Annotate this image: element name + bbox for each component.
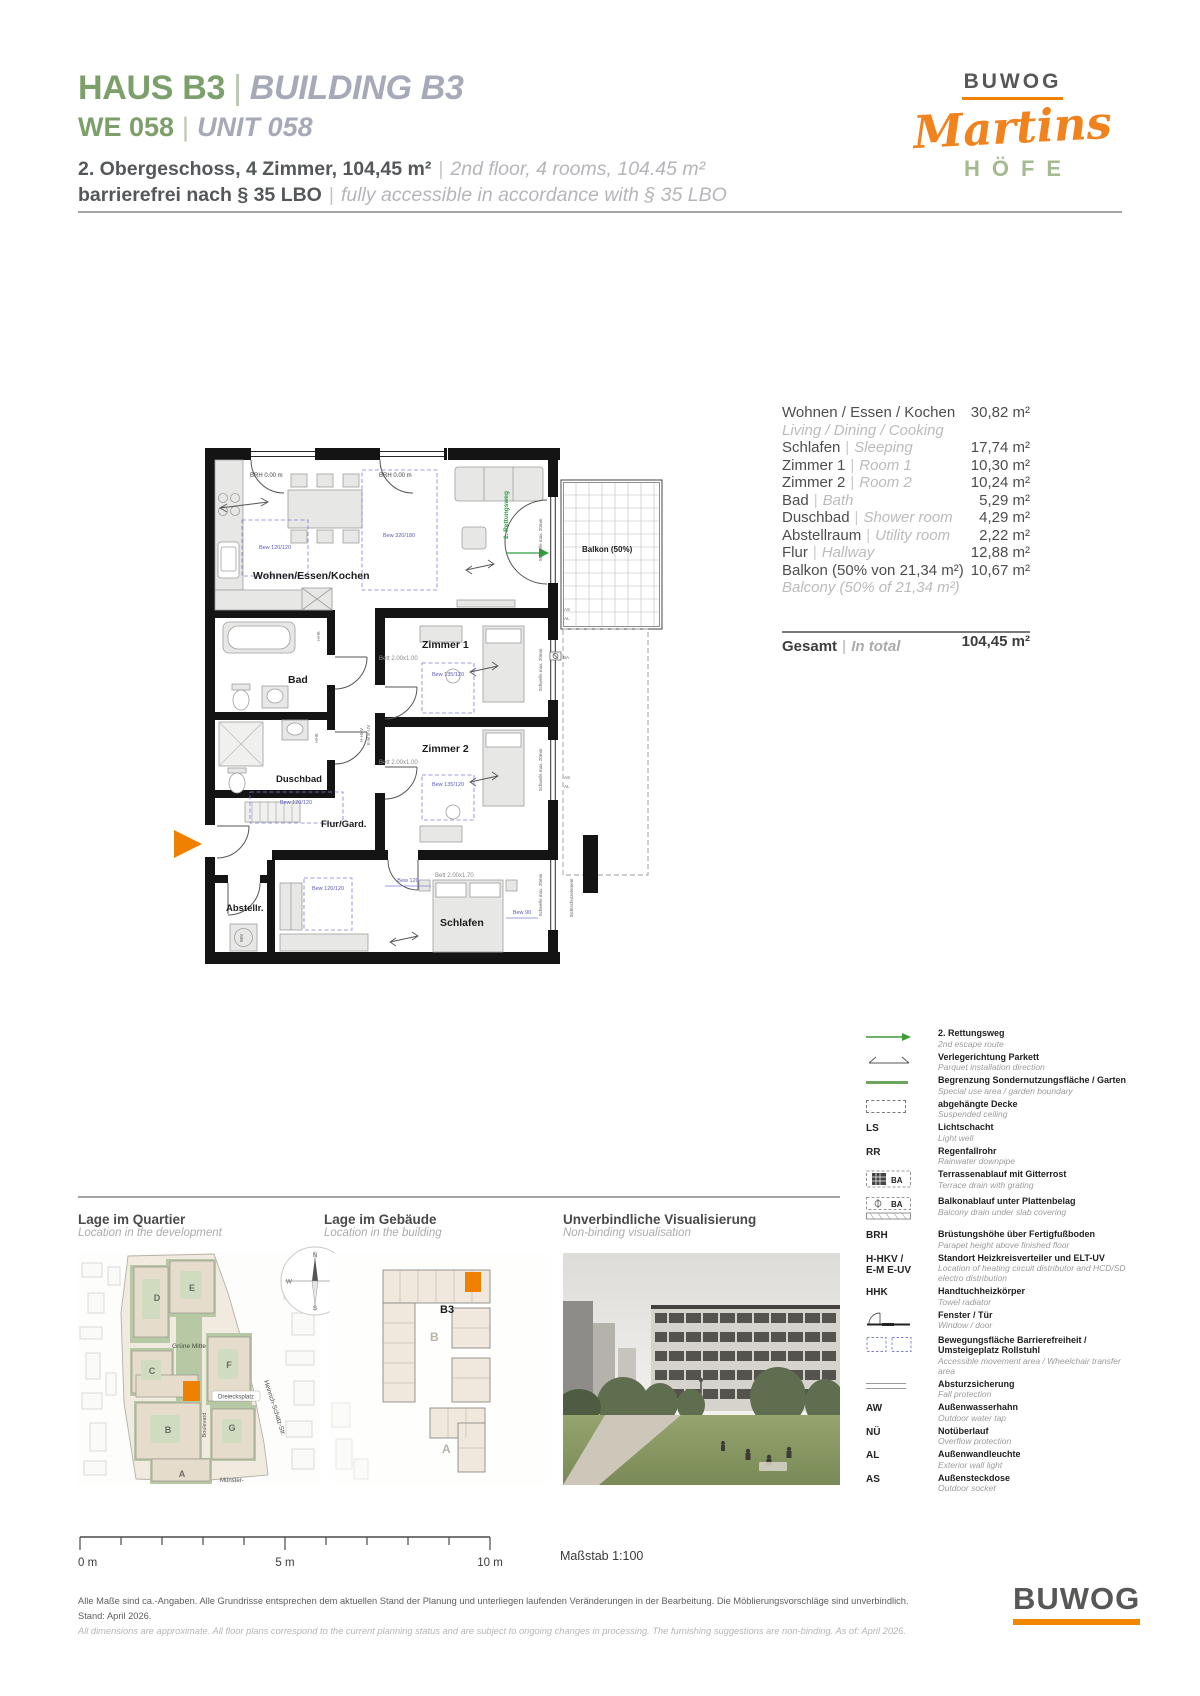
accessible-area-icon bbox=[866, 1336, 916, 1354]
legend-item-overflow: NÜ NotüberlaufOverflow protection bbox=[866, 1426, 1128, 1447]
svg-text:BA: BA bbox=[891, 1200, 903, 1209]
bed-size-sleeping: Bett 2.00x1.70 bbox=[435, 873, 474, 879]
svg-text:C: C bbox=[149, 1366, 156, 1376]
dashed-ceiling-icon bbox=[866, 1100, 906, 1113]
room-label-sleeping: Schlafen bbox=[440, 917, 484, 929]
area-row-living: Wohnen / Essen / Kochen30,82 m² Living /… bbox=[782, 404, 1030, 439]
legend-item-parapet-height: BRH Brüstungshöhe über FertigfußbodenPar… bbox=[866, 1229, 1128, 1250]
svg-text:Bew 320/180: Bew 320/180 bbox=[383, 533, 415, 539]
window-door-icon bbox=[866, 1311, 912, 1327]
bed-size-room2: Bett 2.00x1.00 bbox=[379, 760, 418, 766]
area-row-shower: Duschbad|Shower room4,29 m² bbox=[782, 509, 1030, 527]
room-label-room1: Zimmer 1 bbox=[422, 639, 469, 651]
svg-text:E-M E-UV: E-M E-UV bbox=[366, 725, 371, 745]
svg-text:Bew 120/120: Bew 120/120 bbox=[280, 800, 312, 806]
svg-text:Bew 120: Bew 120 bbox=[397, 878, 418, 884]
entrance-arrow-icon bbox=[174, 830, 202, 858]
maps-divider bbox=[78, 1196, 840, 1198]
boulevard-label: Boulevard bbox=[202, 1413, 208, 1438]
buwog-wordmark: BUWOG bbox=[962, 70, 1064, 100]
svg-text:D: D bbox=[154, 1293, 161, 1303]
area-row-balcony: Balkon (50% von 21,34 m²)10,67 m² Balcon… bbox=[782, 562, 1030, 597]
accessibility-info: barrierefrei nach § 35 LBO|fully accessi… bbox=[78, 182, 778, 208]
floor-plan-drawing: Bew 120/120 Bew 320/180 Bew 135/120 Bew … bbox=[170, 430, 670, 975]
quartier-highlight-unit bbox=[183, 1381, 200, 1401]
floor-plan: Bew 120/120 Bew 320/180 Bew 135/120 Bew … bbox=[170, 430, 670, 975]
legend: 2. Rettungsweg2nd escape route Verlegeri… bbox=[866, 1028, 1128, 1496]
svg-text:AS: AS bbox=[564, 775, 570, 780]
legend-item-escape-route: 2. Rettungsweg2nd escape route bbox=[866, 1028, 1128, 1049]
svg-text:Bew 120/120: Bew 120/120 bbox=[312, 886, 344, 892]
legend-item-terrace-drain: BA Terrassenablauf mit GitterrostTerrace… bbox=[866, 1169, 1128, 1193]
svg-text:Schwelle max. 20mm: Schwelle max. 20mm bbox=[538, 873, 543, 916]
fall-protection-icon bbox=[866, 1383, 906, 1389]
svg-text:AL: AL bbox=[564, 616, 570, 621]
legend-item-light-well: LS LichtschachtLight well bbox=[866, 1122, 1128, 1143]
quartier-map-title: Lage im Quartier Location in the develop… bbox=[78, 1212, 222, 1239]
building-map: B3 B A bbox=[330, 1253, 550, 1490]
parquet-arrow-icon bbox=[866, 1054, 912, 1066]
green-center-label: Grüne Mitte bbox=[172, 1343, 206, 1350]
svg-text:S: S bbox=[313, 1305, 318, 1312]
legend-item-exterior-light: AL AußenwandleuchteExterior wall light bbox=[866, 1449, 1128, 1470]
title-en: BUILDING B3 bbox=[250, 69, 464, 107]
svg-text:HHK: HHK bbox=[314, 733, 319, 743]
room-label-room2: Zimmer 2 bbox=[422, 743, 469, 755]
svg-text:F: F bbox=[226, 1360, 232, 1370]
balcony-drain-label: BA bbox=[563, 655, 569, 660]
legend-item-outdoor-water-tap: AW AußenwasserhahnOutdoor water tap bbox=[866, 1402, 1128, 1423]
project-name-caps: HÖFE bbox=[905, 156, 1120, 182]
terrace-drain-icon: BA bbox=[866, 1170, 916, 1188]
room-label-shower: Duschbad bbox=[276, 774, 322, 785]
svg-text:2. Rettungsweg: 2. Rettungsweg bbox=[503, 491, 510, 539]
disclaimer: Alle Maße sind ca.-Angaben. Alle Grundri… bbox=[78, 1594, 928, 1639]
svg-text:E: E bbox=[189, 1283, 195, 1293]
room-label-storage: Abstellr. bbox=[226, 903, 264, 914]
svg-text:AS: AS bbox=[564, 607, 570, 612]
svg-text:Schwelle max. 20mm: Schwelle max. 20mm bbox=[538, 648, 543, 691]
building-map-title: Lage im Gebäude Location in the building bbox=[324, 1212, 442, 1239]
legend-item-towel-radiator: HHK HandtuchheizkörperTowel radiator bbox=[866, 1286, 1128, 1307]
svg-text:WM: WM bbox=[239, 934, 244, 942]
project-logo: BUWOG Martins HÖFE bbox=[905, 70, 1120, 182]
room-label-balcony: Balkon (50%) bbox=[582, 545, 633, 554]
svg-text:Bew 90: Bew 90 bbox=[513, 910, 531, 916]
legend-item-heating-distributor: H-HKV /E-M E-UV Standort Heizkreisvertei… bbox=[866, 1253, 1128, 1284]
header: HAUS B3|BUILDING B3 WE 058|UNIT 058 2. O… bbox=[78, 68, 778, 208]
svg-text:Bew 120/120: Bew 120/120 bbox=[259, 545, 291, 551]
unit-title: WE 058|UNIT 058 bbox=[78, 110, 778, 144]
scale-bar: 0 m 5 m 10 m bbox=[78, 1534, 510, 1575]
floorplan-sheet: HAUS B3|BUILDING B3 WE 058|UNIT 058 2. O… bbox=[0, 0, 1200, 1696]
room-label-living: Wohnen/Essen/Kochen bbox=[253, 570, 370, 582]
area-table: Wohnen / Essen / Kochen30,82 m² Living /… bbox=[782, 404, 1030, 655]
project-name-script: Martins bbox=[904, 96, 1121, 159]
balcony-area bbox=[561, 480, 662, 893]
parapet-label-2: BRH 0.00 m bbox=[379, 473, 412, 479]
legend-item-balcony-drain: BA Balkonablauf unter PlattenbelagBalcon… bbox=[866, 1196, 1128, 1226]
page-title: HAUS B3|BUILDING B3 bbox=[78, 68, 778, 108]
area-row-sleeping: Schlafen|Sleeping17,74 m² bbox=[782, 439, 1030, 457]
unit-en: UNIT 058 bbox=[197, 112, 313, 142]
svg-text:Schwelle max. 20mm: Schwelle max. 20mm bbox=[538, 748, 543, 791]
balcony-drain-icon: BA bbox=[866, 1197, 916, 1221]
svg-text:G: G bbox=[228, 1423, 235, 1433]
block-b-label: B bbox=[430, 1330, 439, 1344]
svg-text:N: N bbox=[313, 1252, 318, 1259]
scale-label: Maßstab 1:100 bbox=[560, 1549, 643, 1563]
building-highlight-unit bbox=[465, 1272, 481, 1292]
svg-text:B: B bbox=[165, 1425, 172, 1435]
plaza-label: Dreiecksplatz bbox=[218, 1395, 254, 1401]
legend-item-outdoor-socket: AS AußensteckdoseOutdoor socket bbox=[866, 1473, 1128, 1494]
svg-text:H-HKV: H-HKV bbox=[359, 728, 364, 742]
green-boundary-icon bbox=[866, 1081, 908, 1084]
block-a-label: A bbox=[442, 1442, 451, 1456]
visualisation-image bbox=[563, 1253, 840, 1490]
svg-text:BA: BA bbox=[891, 1176, 903, 1185]
legend-item-accessible-area: Bewegungsfläche Barrierefreiheit / Umste… bbox=[866, 1335, 1128, 1376]
legend-item-window-door: Fenster / TürWindow / door bbox=[866, 1310, 1128, 1332]
unit-de: WE 058 bbox=[78, 112, 174, 142]
area-row-room1: Zimmer 1|Room 110,30 m² bbox=[782, 457, 1030, 475]
street2-label: Münster- bbox=[220, 1478, 244, 1484]
legend-item-rain-downpipe: RR RegenfallrohrRainwater downpipe bbox=[866, 1146, 1128, 1167]
title-de: HAUS B3 bbox=[78, 69, 225, 107]
legend-item-garden-boundary: Begrenzung Sondernutzungsfläche / Garten… bbox=[866, 1075, 1128, 1096]
svg-text:0 m: 0 m bbox=[78, 1557, 97, 1569]
title-divider: | bbox=[225, 69, 250, 107]
room-label-hall: Flur/Gard. bbox=[321, 819, 366, 830]
visualisation-title: Unverbindliche Visualisierung Non-bindin… bbox=[563, 1212, 756, 1239]
svg-text:A: A bbox=[179, 1469, 186, 1479]
buwog-logo-bar bbox=[1013, 1619, 1140, 1625]
svg-text:Schwelle max. 20mm: Schwelle max. 20mm bbox=[538, 518, 543, 561]
escape-arrow-icon bbox=[866, 1032, 912, 1042]
svg-text:AL: AL bbox=[564, 784, 570, 789]
svg-text:HHK: HHK bbox=[316, 631, 321, 641]
area-row-hallway: Flur|Hallway12,88 m² bbox=[782, 544, 1030, 562]
legend-item-fall-protection: AbsturzsicherungFall protection bbox=[866, 1379, 1128, 1400]
svg-text:5 m: 5 m bbox=[275, 1557, 294, 1569]
svg-text:Bew 135/120: Bew 135/120 bbox=[432, 782, 464, 788]
unit-b3-label: B3 bbox=[440, 1304, 454, 1316]
legend-item-parquet-direction: Verlegerichtung ParkettParquet installat… bbox=[866, 1052, 1128, 1073]
svg-text:Sichtschutzelement: Sichtschutzelement bbox=[569, 878, 574, 918]
svg-text:10 m: 10 m bbox=[477, 1557, 503, 1569]
area-row-room2: Zimmer 2|Room 210,24 m² bbox=[782, 474, 1030, 492]
privacy-screen-wall bbox=[583, 835, 598, 893]
buwog-footer-logo: BUWOG bbox=[1013, 1582, 1140, 1625]
header-divider bbox=[78, 211, 1122, 213]
svg-text:W: W bbox=[286, 1279, 293, 1286]
unit-info: 2. Obergeschoss, 4 Zimmer, 104,45 m²|2nd… bbox=[78, 156, 778, 182]
svg-text:Bew 135/120: Bew 135/120 bbox=[432, 672, 464, 678]
area-total-row: Gesamt|In total104,45 m² bbox=[782, 631, 1030, 656]
bed-size-room1: Bett 2.00x1.00 bbox=[379, 656, 418, 662]
area-row-utility: Abstellraum|Utility room2,22 m² bbox=[782, 527, 1030, 545]
legend-item-suspended-ceiling: abgehängte DeckeSuspended ceiling bbox=[866, 1099, 1128, 1120]
room-label-bath: Bad bbox=[288, 674, 308, 686]
parapet-label-1: BRH 0.00 m bbox=[250, 473, 283, 479]
area-row-bath: Bad|Bath5,29 m² bbox=[782, 492, 1030, 510]
